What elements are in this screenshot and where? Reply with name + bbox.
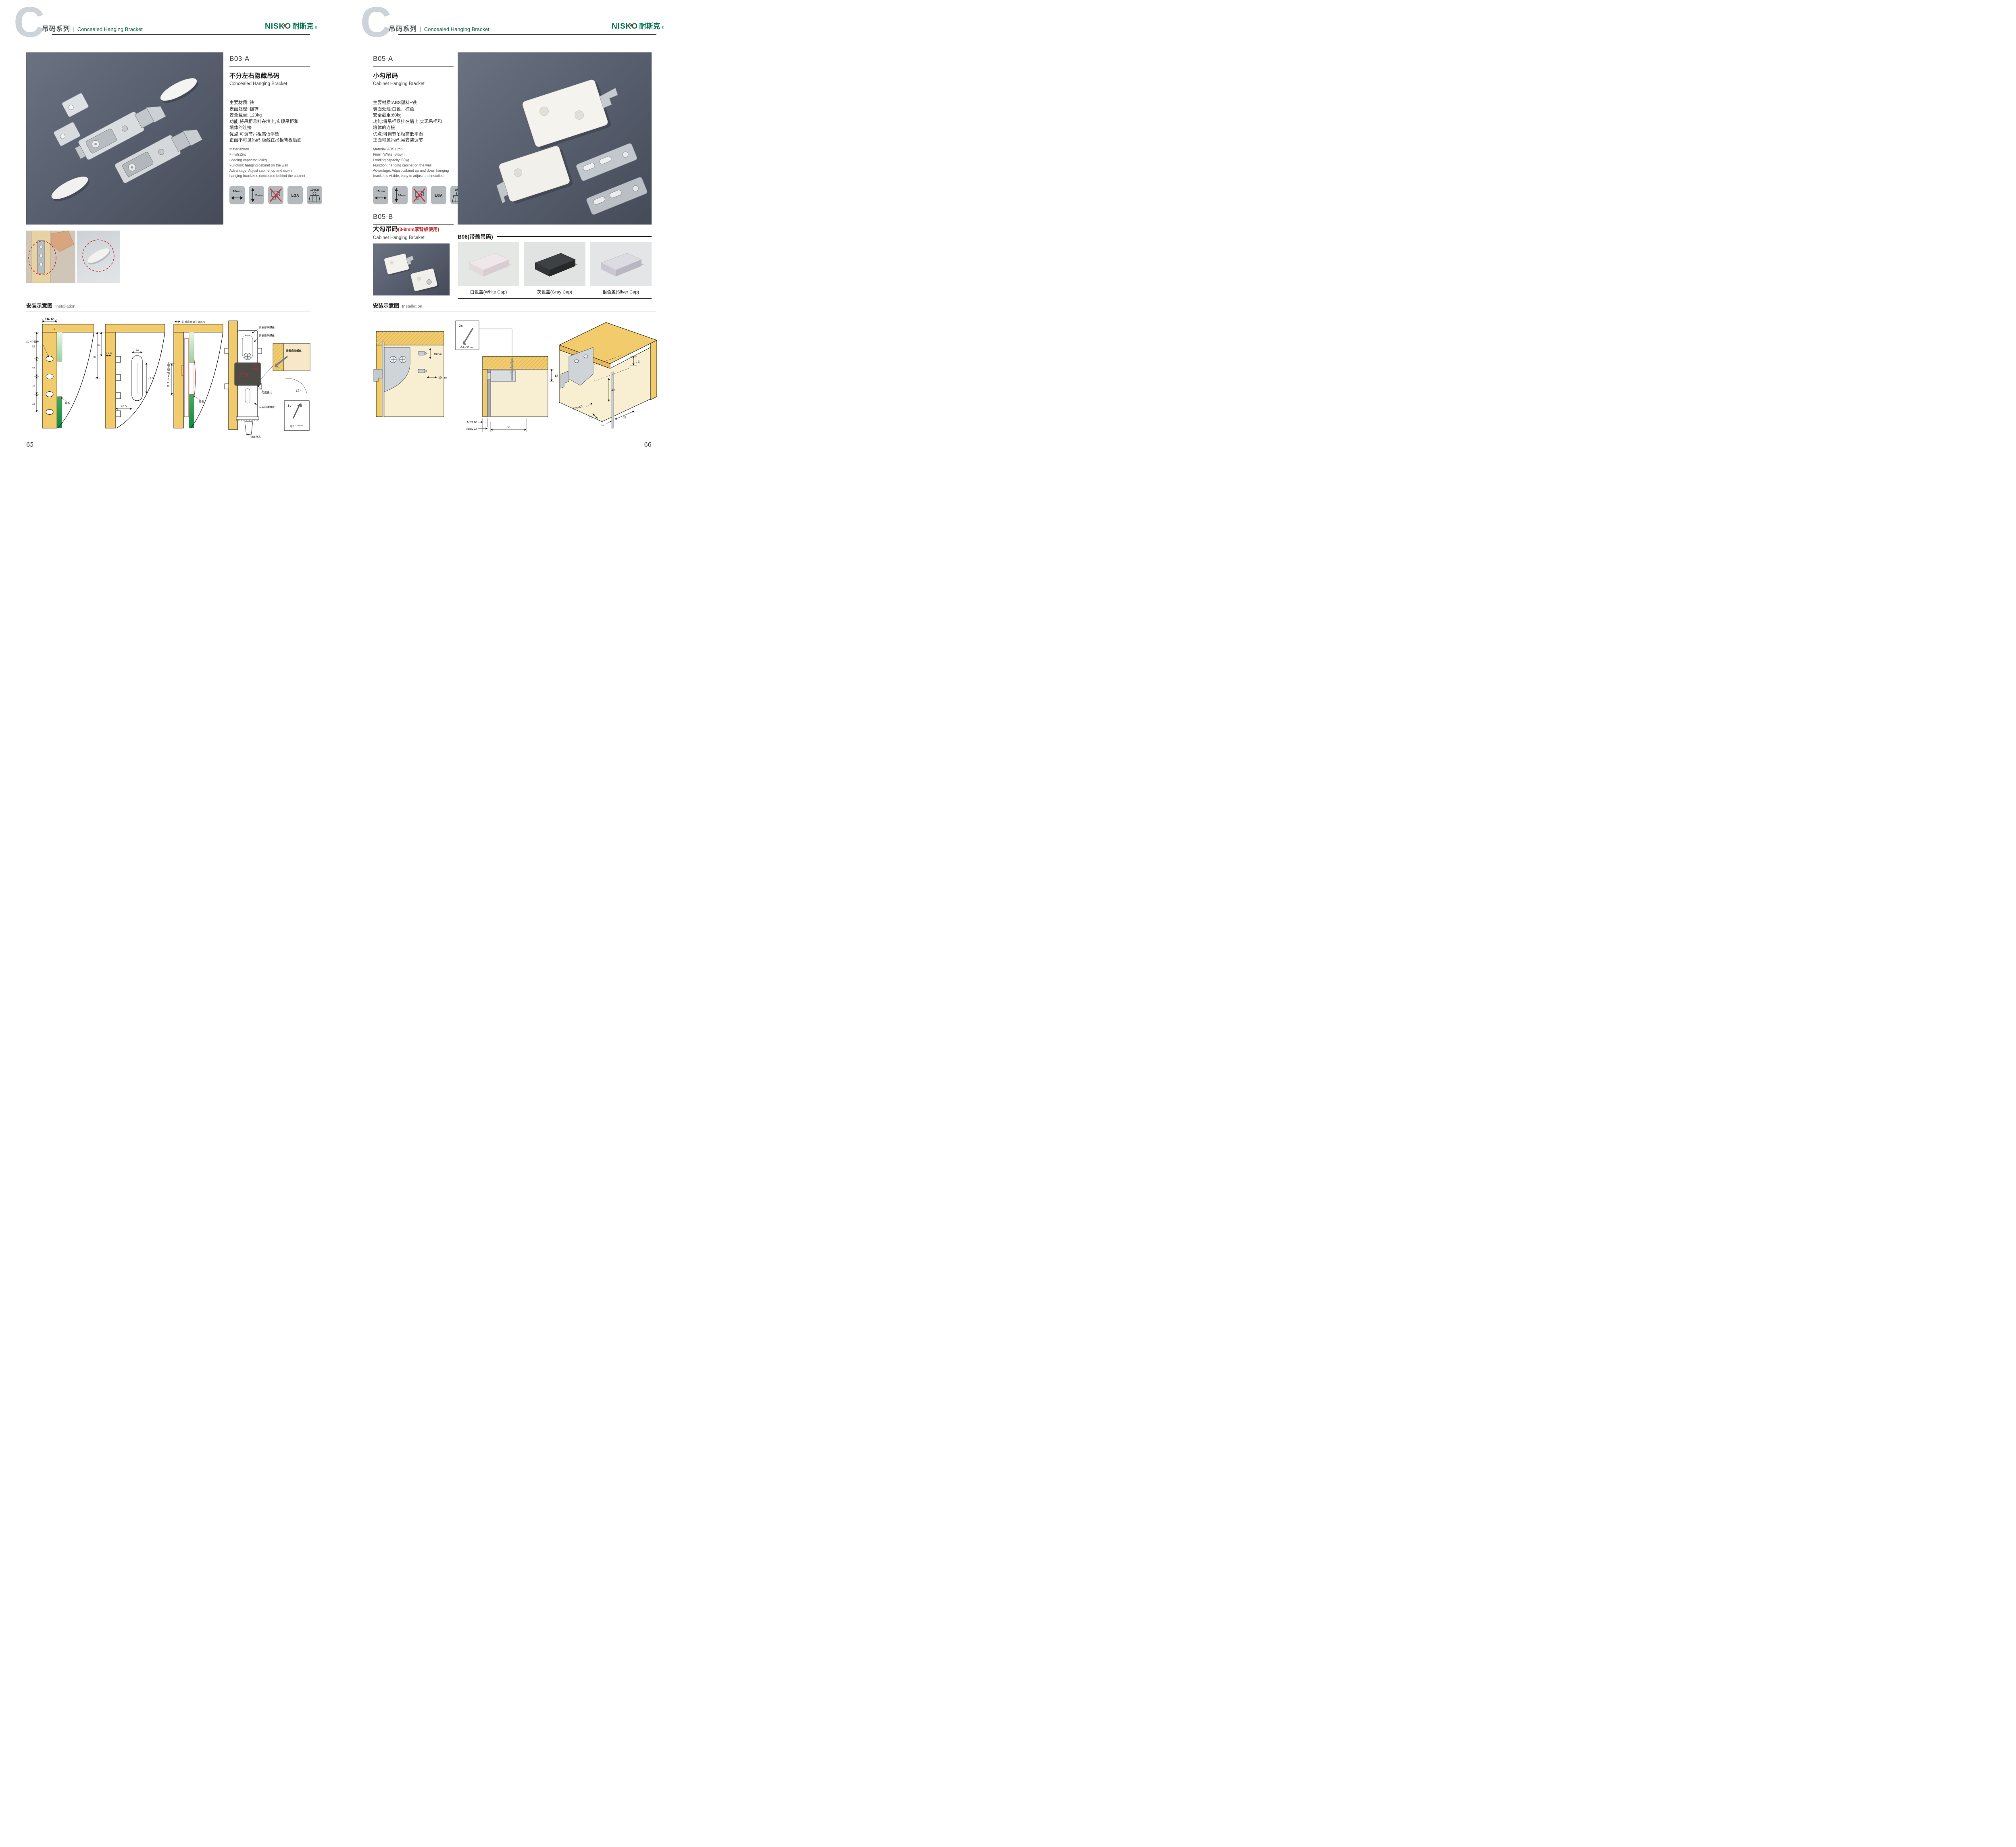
svg-text:LGA: LGA [435,193,443,198]
spec-line: 优点:可调节吊柜高低平衡 [229,131,302,138]
product-name-cn: 大勾吊码 [373,226,398,233]
angle-label: 45° [296,389,301,393]
brand-logo-cn: 耐斯克 [639,21,660,31]
product-name-en-b05b: Cabinet Hanging Brcaket [373,235,425,240]
front-back-adjust-label: 前后最大调节10mm [182,320,205,324]
vertical-adjust-icon: 10mm [392,186,408,204]
svg-text:120Kg: 120Kg [310,189,319,191]
product-name-note: (3-9mm厚背板使用) [398,227,439,232]
brand-logo-cn: 耐斯克 [292,21,314,31]
dim-min10: MIN.10 [467,421,477,424]
abs-block-2 [491,144,574,208]
load-capacity-icon: 120Kg [307,186,322,204]
lock-state-label: 锁紧状态 [250,435,261,439]
b06-bottom-rule [458,298,652,299]
specs-cn: 主要材质: 铁 表面处理: 镀锌 安全载重: 120kg 功能:将吊柜悬挂在墙上… [229,100,302,144]
series-title-cn: 吊码系列 [389,23,417,33]
screw-label-2: 安装自攻螺丝 [259,333,275,337]
dim-42: 42 [611,388,615,392]
spec-line: 正面不可见吊码,隐藏在吊柜背板后面 [229,137,302,144]
product-photo-b03a [26,52,223,225]
svg-text:φ3.5mm: φ3.5mm [290,424,304,428]
product-name-cn: 不分左右隐藏吊码 [229,71,279,80]
brand-logo-en: NISKO [265,22,291,31]
installation-header: 安装示意图 Installation [373,302,422,309]
up-down-adjust-label: 上下调节10mm [166,362,170,396]
spec-line: Function: hanging cabinet on the wall [373,163,449,168]
thumb-installed-bracket [26,231,75,283]
series-title-en: Concealed Hanging Bracket [77,26,143,32]
diagram-screw-section: 2x Φ4×30mm 18 MIN.10 MAX [456,321,558,432]
spec-line: Material: ABS+Iron [373,147,449,152]
cap-photo-white [458,242,519,286]
spec-line: 优点:可调节吊柜高低平衡 [373,131,442,138]
spec-line: hanging bracket is concealed behind the … [229,173,305,179]
series-title-en: Concealed Hanging Bracket [424,26,489,32]
specs-en: Material:Iron Finish:Zinc Loading capaci… [229,147,305,179]
brand-logo: NISKO 耐斯克 ® [612,21,664,31]
svg-text:60: 60 [93,356,96,359]
spec-line: 表面处理:白色、棕色 [373,106,442,113]
svg-text:2x: 2x [459,324,463,328]
svg-text:32: 32 [32,367,35,370]
dim-15mm: 15mm [438,376,447,379]
installation-rule [26,312,310,312]
product-code-b05b: B05-B [373,213,454,225]
installation-rule [373,312,656,312]
header-rule [398,34,656,35]
product-info-b05a: B05-A 小勾吊码 Cabinet Hanging Bracket 主要材质:… [373,55,454,216]
product-name-b05b: 大勾吊码(3-9mm厚背板使用) [373,224,439,233]
svg-text:32: 32 [32,385,35,388]
b06-section-header: B06(带盖吊码) [458,232,652,240]
abs-block-1 [522,73,627,151]
diagram-bracket-adjust: 10mm 15mm [374,331,447,417]
svg-text:10mm: 10mm [398,194,406,197]
catalog-spread: C 吊码系列 | Concealed Hanging Bracket NISKO… [0,0,676,462]
series-title-cn: 吊码系列 [42,23,70,33]
holes-label: 10-4个均布 [26,340,40,343]
vertical-adjust-icon: 10mm [249,186,264,204]
brand-logo-en: NISKO [612,22,638,31]
screw-label-1: 安装自攻螺丝 [259,325,275,329]
installation-title-cn: 安装示意图 [373,302,399,309]
header-rule [52,34,310,35]
spec-line: bracket is visible, easy to adjust and i… [373,173,449,179]
spec-line: Loading capacity: 60kg [373,158,449,163]
spec-line: 正面可见吊码,易安装调节 [373,137,442,144]
b03a-photo-illustration [26,52,223,225]
installation-title-en: Installation [402,304,422,309]
svg-text:10mm: 10mm [233,189,242,193]
installation-header: 安装示意图 Installation [26,302,75,309]
svg-text:16-18: 16-18 [45,318,54,321]
diagram-slot-dimensions: 35 60 12.5 12 42.5 20.5 [93,324,165,428]
svg-text:35: 35 [32,345,35,348]
thumb-cover-cap [77,231,120,283]
lga-cert-icon: LGA [287,186,303,204]
diagram-drilling-layout: 16-18 5 35 32 32 32 10-4个均布 背板 [26,318,94,428]
series-letter-watermark: C [360,1,392,44]
diagram-isometric: 16 42 RMAX4 16 17 32 [559,322,657,428]
product-photo-b05a [458,52,652,225]
svg-text:20.5: 20.5 [121,405,127,408]
title-divider: | [73,26,75,33]
dim-max23: MAX.23 [467,427,477,431]
svg-text:12.5: 12.5 [106,352,112,355]
no-drill-icon [412,186,427,204]
spec-line: 表面处理: 镀锌 [229,106,302,113]
page-header-title: 吊码系列 | Concealed Hanging Bracket [42,23,143,33]
spec-line: 安全载重: 120kg [229,112,302,119]
callout-screw-label: 安装自攻螺丝 [286,349,302,352]
no-drill-icon [268,186,283,204]
back-panel-label: 背板 [65,401,71,405]
cap-label-silver: 银色盖(Silver Cap) [590,289,652,295]
b05a-photo-illustration [458,52,652,225]
svg-text:12: 12 [135,348,139,352]
title-divider: | [420,26,421,33]
installation-title-cn: 安装示意图 [26,302,52,309]
product-photo-b05b [373,243,450,295]
brand-registered-mark: ® [662,26,664,29]
metal-rail-1 [576,143,638,181]
brand-registered-mark: ® [315,26,317,29]
feature-icons: 15mm 10mm LGA 60Kg [373,186,466,204]
page-number-left: 65 [26,442,33,448]
metal-rail-2 [586,177,648,215]
diagram-screw-callout: 安装自攻螺丝 45° 1x φ3.5mm [261,343,310,431]
spec-line: Finish:White, Brown [373,152,449,157]
cap-photo-silver [590,242,652,286]
product-code: B05-A [373,55,454,67]
series-letter-watermark: C [14,1,45,44]
svg-text:32: 32 [32,402,35,406]
spec-line: Function: hanging cabinet on the wall [229,163,305,168]
b06-rule [497,236,652,237]
spec-line: 墙体的连接 [373,125,442,131]
product-name-en: Cabinet Hanging Bracket [373,81,425,86]
plate-label: 专用挂片 [262,391,272,394]
spec-line: Advantage: Adjust cabinet up and down ha… [373,168,449,173]
b06-title: B06(带盖吊码) [458,232,493,240]
screw-label-3: 安装自攻螺丝 [259,405,275,409]
cap-photo-gray [524,242,585,286]
back-panel-label-2: 背板 [199,399,204,403]
svg-text:LGA: LGA [292,193,299,198]
product-info-b03a: B03-A 不分左右隐藏吊码 Concealed Hanging Bracket… [229,55,310,216]
brand-logo: NISKO 耐斯克 ® [265,21,317,31]
spec-line: Material:Iron [229,147,305,152]
lga-cert-icon: LGA [431,186,446,204]
svg-text:15mm: 15mm [376,189,385,193]
dim-16-bottom: 16 [589,416,592,419]
brand-logo-dot [283,24,286,27]
dim-17: 17 [601,423,604,426]
cap-label-gray: 灰色盖(Gray Cap) [524,289,585,295]
dim-10mm: 10mm [433,352,442,356]
cap-label-white: 白色盖(White Cap) [458,289,519,295]
brand-logo-dot [630,24,633,27]
specs-en: Material: ABS+Iron Finish:White, Brown L… [373,147,449,179]
horizontal-adjust-icon: 15mm [373,186,388,204]
page-right: C 吊码系列 | Concealed Hanging Bracket NISKO… [338,0,676,462]
spec-line: Finish:Zinc [229,152,305,157]
diagram-adjustment-section: 前后最大调节10mm 背板 [170,320,223,428]
dim-16-top: 16 [636,360,640,364]
spec-line: Advantage: Adjust cabinet up and down [229,168,305,173]
product-name-en: Concealed Hanging Bracket [229,81,287,86]
svg-text:5: 5 [54,327,55,331]
cap-labels: 白色盖(White Cap) 灰色盖(Gray Cap) 银色盖(Silver … [458,289,652,295]
page-header-title: 吊码系列 | Concealed Hanging Bracket [389,23,489,33]
spec-line: Loading capacity:120kg [229,158,305,163]
dim-58: 58 [506,425,510,429]
installation-diagrams-right: 10mm 15mm 2x Φ4×30mm [373,318,657,439]
spec-line: 主要材质: 铁 [229,100,302,106]
svg-text:10mm: 10mm [254,194,262,197]
svg-text:1x: 1x [287,404,292,408]
dim-32: 32 [623,416,626,419]
feature-icons: 10mm 10mm LGA 120Kg [229,186,322,204]
specs-cn: 主要材质:ABS塑料+铁 表面处理:白色、棕色 安全载重:60kg 功能:将吊柜… [373,100,442,144]
diagram-bracket-front: 安装自攻螺丝 安装自攻螺丝 专用挂片 安装自攻螺丝 锁紧状态 [225,321,275,439]
product-name-cn: 小勾吊码 [373,71,398,80]
spec-line: 主要材质:ABS塑料+铁 [373,100,442,106]
spec-line: 功能:将吊柜悬挂在墙上,实现吊柜和 [373,119,442,125]
page-number-right: 66 [602,442,652,448]
horizontal-adjust-icon: 10mm [229,186,245,204]
dim-18: 18 [554,374,558,378]
page-left: C 吊码系列 | Concealed Hanging Bracket NISKO… [0,0,338,462]
svg-text:Φ4×30mm: Φ4×30mm [460,346,475,349]
installation-title-en: Installation [55,304,75,309]
spec-line: 安全载重:60kg [373,112,442,119]
product-code: B03-A [229,55,310,67]
svg-text:42.5: 42.5 [148,377,154,380]
spec-line: 墙体的连接 [229,125,302,131]
spec-line: 功能:将吊柜悬挂在墙上,实现吊柜和 [229,119,302,125]
